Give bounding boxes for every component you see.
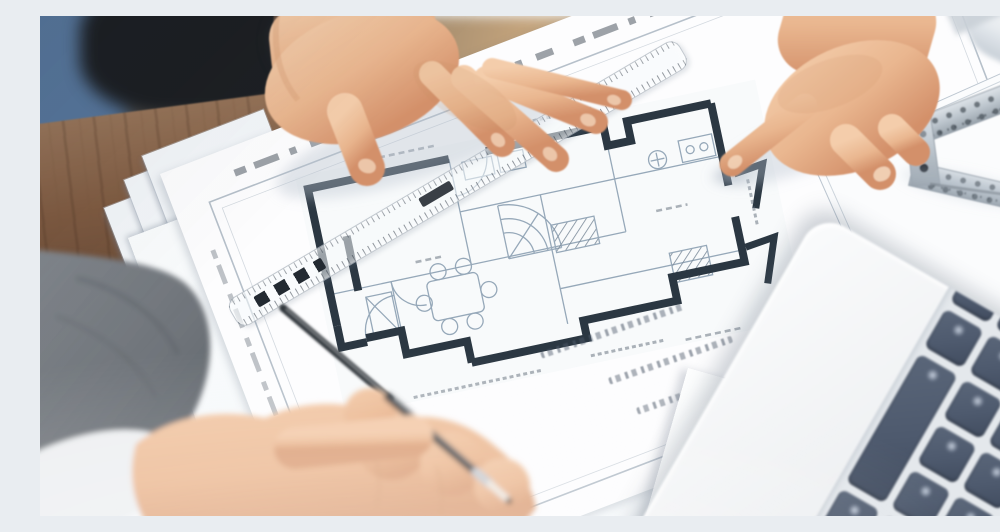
foreground-hand-with-pencil [40,248,536,516]
photo-architects-blueprint [40,16,1000,516]
knuckle [474,458,530,514]
pencil-upper [283,308,390,399]
hands-and-tools [40,16,1000,516]
thumb-over-pencil [295,436,412,448]
pencil-lead [506,498,512,504]
